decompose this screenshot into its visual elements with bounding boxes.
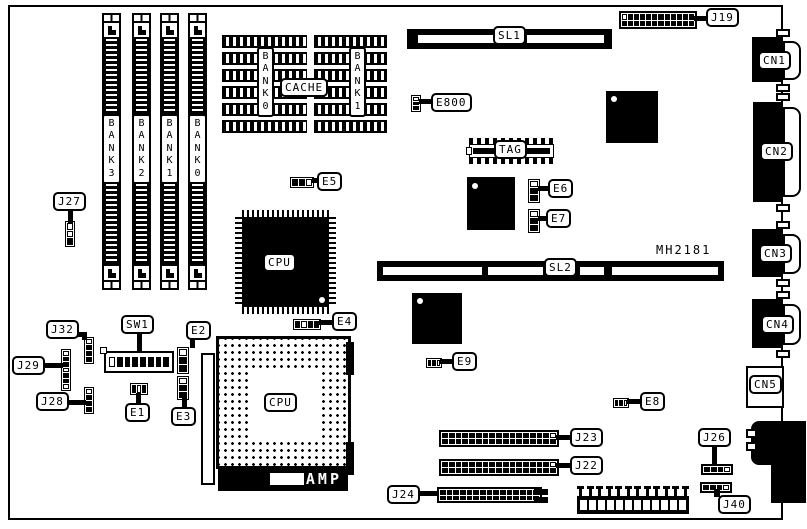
power-connector [577,486,689,514]
socket-side-bar [201,353,215,485]
pad [542,497,548,503]
simm-top-cap [132,13,151,23]
callout-e9: E9 [452,352,477,371]
cache-bank1-label: B A N K 1 [349,47,366,117]
board-part-number: MH2181 [656,243,711,257]
pin1-dot-icon [611,96,617,102]
jumper-e7 [528,209,540,233]
simm-top-cap [102,13,121,23]
jumper-j29 [61,349,71,391]
jumper-j27 [65,221,75,247]
callout-j29: J29 [12,356,45,375]
leader-j24 [419,491,438,496]
callout-j26: J26 [698,428,731,447]
simm-slot-bank1: B A N K 1 [160,13,179,290]
mount-tab [776,204,790,212]
connector-tab [746,429,757,438]
simm-bottom-latch [132,264,151,280]
pad [542,489,548,495]
header-j26 [701,464,733,475]
leader-j27 [68,210,73,223]
simm-bank0-label: B A N K 0 [188,114,207,184]
cn1-label: CN1 [758,51,791,70]
callout-j40: J40 [718,495,751,514]
power-socket-row [577,496,689,514]
latch-icon [166,269,174,278]
simm-slot-bank3: B A N K 3 [102,13,121,290]
connector-tab [746,442,757,451]
slot-contact-stripe [383,267,482,275]
callout-e2: E2 [186,321,211,340]
cn4-label: CN4 [761,315,794,334]
header-j19 [619,11,697,29]
leader-j26 [712,446,717,465]
leader-j28 [67,400,86,405]
keyboard-connector-base [771,463,806,503]
tag-label: TAG [494,140,527,159]
slot-contact-stripe [580,267,604,275]
simm-bank3-label: B A N K 3 [102,114,121,184]
sw1-pin1-marker [100,347,107,354]
leader-e2 [190,339,195,348]
simm-bottom-cap [102,280,121,290]
callout-j24: J24 [387,485,420,504]
callout-j32: J32 [46,320,79,339]
callout-e800: E800 [431,93,472,112]
header-j23 [439,430,559,447]
latch-icon [166,26,174,35]
simm-bank2-label: B A N K 2 [132,114,151,184]
latch-icon [138,269,146,278]
simm-top-latch [102,23,121,39]
cache-chip [222,120,307,133]
latch-icon [108,26,116,35]
cpu-socket-label: CPU [264,393,297,412]
simm-slot-bank2: B A N K 2 [132,13,151,290]
simm-bank1-label: B A N K 1 [160,114,179,184]
simm-bottom-latch [102,264,121,280]
mount-tab [776,29,790,37]
callout-e3: E3 [171,407,196,426]
chip-pins [235,217,242,307]
callout-e5: E5 [317,172,342,191]
dip-switch-sw1 [104,351,174,373]
simm-top-latch [188,23,207,39]
mount-tab [776,221,790,229]
slot-contact-stripe [488,267,543,275]
jumper-e6 [528,179,540,203]
pin1-dot-icon [472,183,478,189]
chip-notch [466,147,472,155]
latch-icon [108,269,116,278]
cache-bank0-label: B A N K 0 [257,47,274,117]
cpu-qfp-label: CPU [263,253,296,272]
amp-window [270,473,304,485]
simm-slot-bank0: B A N K 0 [188,13,207,290]
mount-tab [776,279,790,287]
jumper-j32 [84,337,94,364]
cn3-label: CN3 [759,244,792,263]
pin1-dot-icon [417,298,423,304]
simm-bottom-latch [188,264,207,280]
cache-chip [314,120,387,133]
cn2-label: CN2 [760,142,793,161]
callout-sw1: SW1 [121,315,154,334]
callout-j23: J23 [570,428,603,447]
sl1-label: SL1 [493,26,526,45]
simm-bottom-cap [132,280,151,290]
jumper-e2 [177,347,189,374]
simm-top-cap [160,13,179,23]
header-j24 [437,487,542,503]
simm-top-latch [160,23,179,39]
asic-chip-2 [467,177,515,230]
mount-tab [776,93,790,101]
asic-chip-1 [606,91,658,143]
callout-e1: E1 [125,403,150,422]
jumper-e5 [290,177,314,188]
cache-label: CACHE [280,78,328,97]
mount-tab [776,350,790,358]
sl2-label: SL2 [544,258,577,277]
header-j22 [439,459,559,476]
pin1-dot-icon [319,297,325,303]
asic-chip-3 [412,293,462,344]
leader-j32 [82,332,87,340]
callout-j22: J22 [570,456,603,475]
latch-icon [194,26,202,35]
chip-pins [329,217,336,307]
amp-bar: AMP [218,467,348,491]
pad [534,497,540,503]
simm-top-cap [188,13,207,23]
simm-bottom-cap [188,280,207,290]
callout-e8: E8 [640,392,665,411]
chip-pins [242,307,329,314]
mount-tab [776,84,790,92]
latch-icon [138,26,146,35]
socket-tab [346,342,354,375]
callout-e4: E4 [332,312,357,331]
chip-marking [524,148,550,154]
socket-brand-label: AMP [306,470,342,488]
callout-e6: E6 [548,179,573,198]
callout-j28: J28 [36,392,69,411]
cn5-label: CN5 [749,375,782,394]
mount-tab [776,291,790,299]
callout-e7: E7 [546,209,571,228]
simm-top-latch [132,23,151,39]
callout-j19: J19 [706,8,739,27]
slot-contact-stripe [527,35,604,43]
slot-contact-stripe [418,35,495,43]
solder-pad-block [534,489,548,503]
simm-bottom-cap [160,280,179,290]
pad [534,489,540,495]
latch-icon [194,269,202,278]
leader-sw1 [137,333,142,352]
motherboard-diagram: B A N K 3 B A N K 2 B A N K 1 B A N K 0 … [0,0,807,529]
slot-contact-stripe [612,267,718,275]
keyboard-connector [751,421,806,465]
leader-j29 [44,363,63,368]
chip-pins [242,210,329,217]
jumper-e4 [293,319,321,330]
callout-j27: J27 [53,192,86,211]
simm-bottom-latch [160,264,179,280]
